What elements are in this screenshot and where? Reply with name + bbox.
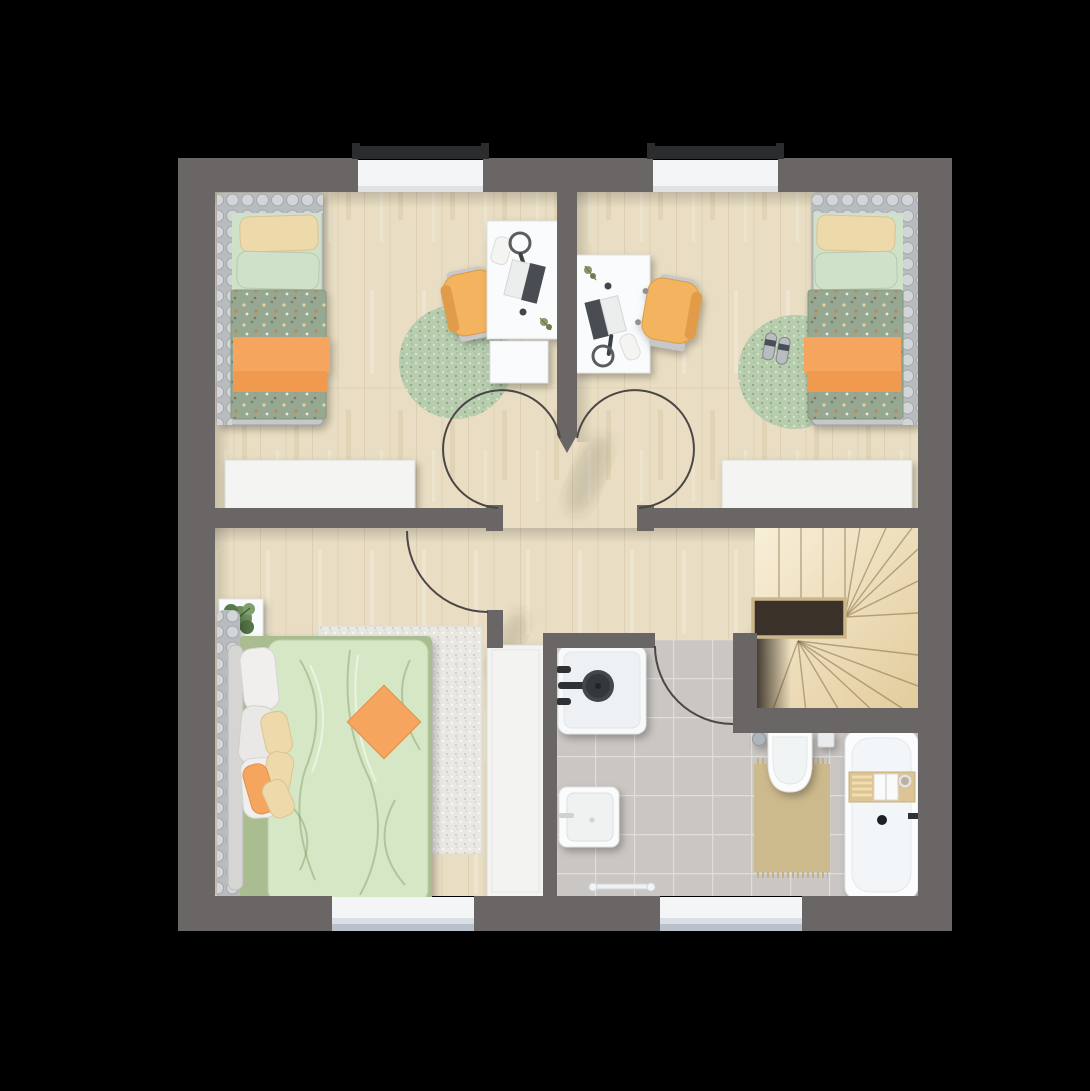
- orange-blanket: [233, 337, 330, 373]
- flush-plate: [818, 732, 834, 747]
- desk: [574, 255, 650, 373]
- bed-side-rail: [903, 193, 918, 425]
- washbasin: [559, 787, 619, 847]
- wall-bath-top: [543, 633, 655, 648]
- toilet-brush: [753, 733, 766, 746]
- shower: [556, 646, 646, 734]
- tub-drain: [877, 815, 887, 825]
- stair-descent-shadow: [757, 636, 791, 712]
- wall-kids-right: [640, 508, 918, 528]
- wall-top-b: [483, 158, 653, 192]
- wall-bottom-b: [474, 896, 660, 931]
- wall-bath-left: [543, 633, 557, 896]
- wall-master-stub: [487, 610, 503, 648]
- wardrobe: [487, 645, 544, 897]
- basin-faucet: [559, 813, 574, 818]
- drawer-unit: [490, 341, 548, 383]
- wall-bottom-a: [178, 896, 332, 931]
- window-bottom-bathroom: [660, 897, 802, 931]
- window-top-left: [352, 143, 489, 192]
- wall-divider: [557, 192, 577, 435]
- window-bottom-master: [332, 897, 474, 931]
- wall-bottom-c: [802, 896, 952, 931]
- wall-stair-bottom: [733, 708, 918, 733]
- wall-left: [178, 158, 215, 931]
- staircase: [753, 528, 918, 712]
- floor-plan-svg: [0, 0, 1090, 1091]
- bathtub: [845, 731, 920, 899]
- double-bed: [217, 610, 432, 904]
- window-top-right: [647, 143, 784, 192]
- floor-plan-stage: [0, 0, 1090, 1091]
- dresser: [225, 460, 415, 512]
- stairwell-void: [753, 599, 845, 637]
- single-bed: [217, 193, 330, 425]
- bath-caddy: [849, 772, 915, 802]
- mint-pillow: [237, 251, 320, 290]
- wall-right: [918, 158, 952, 931]
- single-bed: [804, 193, 918, 425]
- orange-blanket: [804, 337, 901, 373]
- bed-head-rail: [217, 193, 323, 213]
- door-post-left: [486, 505, 503, 531]
- mint-pillow: [815, 251, 898, 290]
- cream-pillow: [239, 215, 318, 253]
- bed-side-rail: [217, 193, 232, 425]
- cream-pillow: [816, 215, 895, 253]
- bed-head-rail: [812, 193, 918, 213]
- wall-kids-left: [215, 508, 497, 528]
- desk: [487, 221, 563, 339]
- dresser: [722, 460, 912, 512]
